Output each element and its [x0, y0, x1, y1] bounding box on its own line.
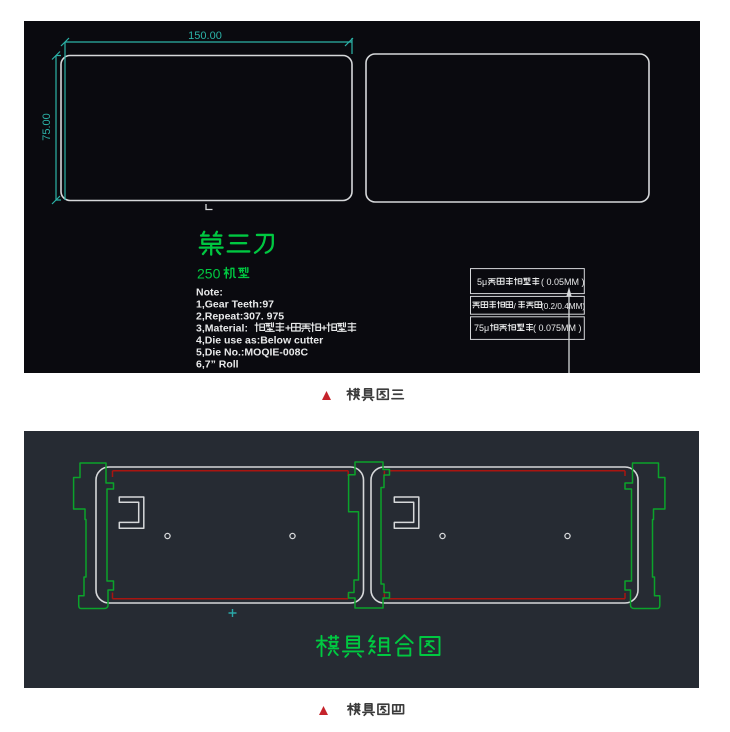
- svg-text:Note:: Note:: [196, 287, 223, 299]
- svg-text:4,Die use as:Below cutter: 4,Die use as:Below cutter: [196, 335, 323, 347]
- svg-text:5μ: 5μ: [477, 277, 487, 287]
- svg-text:(0.2/0.4MM): (0.2/0.4MM): [541, 302, 585, 311]
- svg-text:+: +: [285, 323, 291, 335]
- svg-text:250: 250: [197, 266, 221, 282]
- svg-text:5,Die No.:MOQIE-008C: 5,Die No.:MOQIE-008C: [196, 347, 308, 359]
- svg-text:3,Material:: 3,Material:: [196, 323, 248, 335]
- svg-text:75μ: 75μ: [474, 323, 489, 333]
- svg-text:6,7” Roll: 6,7” Roll: [196, 359, 239, 371]
- svg-text:75.00: 75.00: [41, 113, 53, 141]
- svg-text:( 0.075MM ): ( 0.075MM ): [533, 323, 582, 333]
- svg-text:+: +: [321, 323, 327, 335]
- svg-text:150.00: 150.00: [188, 30, 222, 42]
- svg-text:2,Repeat:307. 975: 2,Repeat:307. 975: [196, 311, 284, 323]
- svg-text:1,Gear Teeth:97: 1,Gear Teeth:97: [196, 299, 274, 311]
- svg-text:( 0.05MM ): ( 0.05MM ): [541, 277, 585, 287]
